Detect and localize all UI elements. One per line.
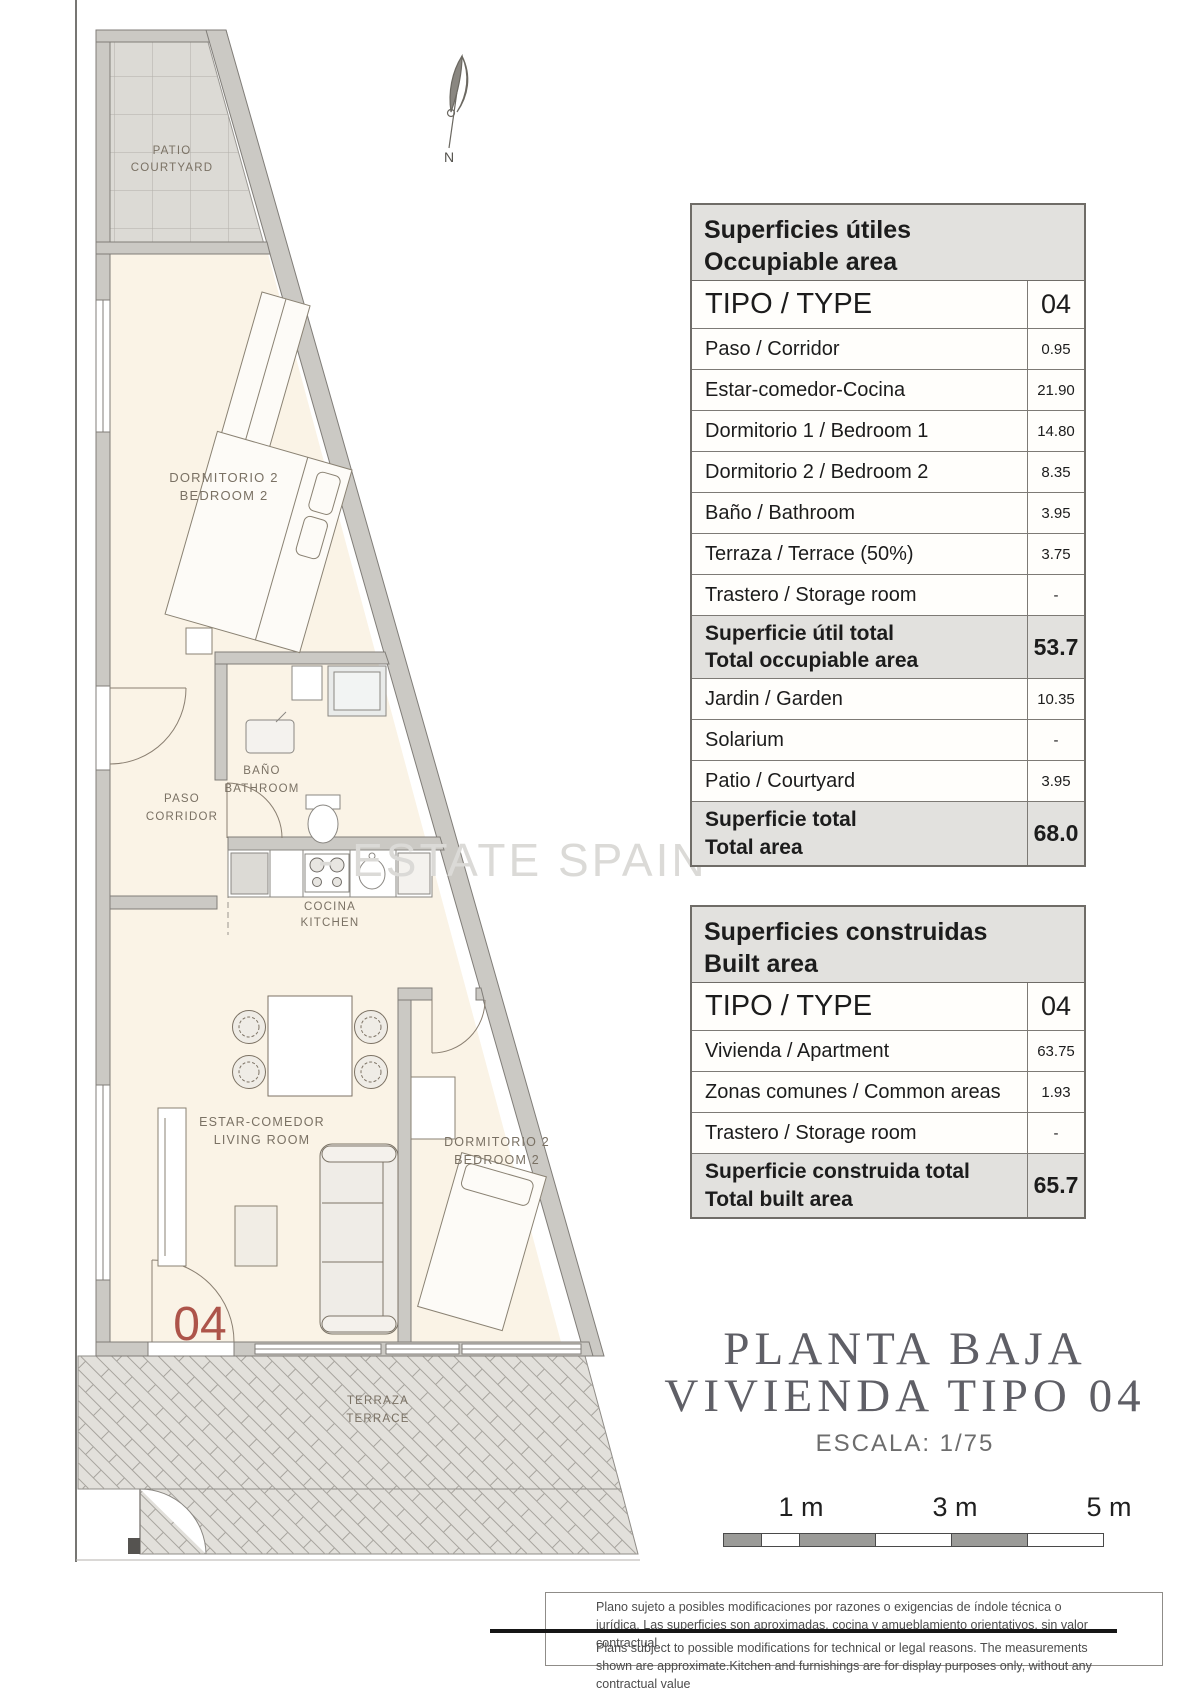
- table-row: Jardin / Garden 10.35: [692, 679, 1084, 720]
- built-table-header: Superficies construidas Built area: [692, 907, 1084, 983]
- table-row: Paso / Corridor 0.95: [692, 329, 1084, 370]
- scale-segment: [875, 1533, 952, 1547]
- total-row: Superficie construida total Total built …: [692, 1154, 1084, 1217]
- room-label-living: ESTAR-COMEDOR: [199, 1115, 325, 1129]
- compass-icon: [448, 56, 468, 148]
- scale-segment: [799, 1533, 876, 1547]
- table-row: Baño / Bathroom 3.95: [692, 493, 1084, 534]
- tv-unit: [158, 1108, 186, 1266]
- table-row: Trastero / Storage room -: [692, 1113, 1084, 1154]
- room-label-kitchen: COCINA: [304, 901, 356, 913]
- room-label-corridor: PASO: [164, 793, 200, 805]
- terrace-area: [78, 1356, 638, 1554]
- table-row: Dormitorio 1 / Bedroom 1 14.80: [692, 411, 1084, 452]
- room-label-bedroom-lower: DORMITORIO 2: [444, 1135, 550, 1149]
- room-label-patio: PATIO: [153, 145, 192, 157]
- table-row: Terraza / Terrace (50%) 3.75: [692, 534, 1084, 575]
- scale-text: ESCALA: 1/75: [650, 1430, 1160, 1458]
- closet: [411, 1077, 455, 1139]
- table-row: Vivienda / Apartment 63.75: [692, 1031, 1084, 1072]
- table-row: Zonas comunes / Common areas 1.93: [692, 1072, 1084, 1113]
- room-label-living2: LIVING ROOM: [214, 1133, 311, 1147]
- occupiable-table-header: Superficies útiles Occupiable area: [692, 205, 1084, 281]
- room-label-bath: BAÑO: [243, 764, 280, 777]
- room-label-terrace2: TERRACE: [346, 1413, 409, 1425]
- title-line-2: VIVIENDA TIPO 04: [650, 1373, 1160, 1420]
- disclaimer-divider-line: [490, 1629, 1117, 1633]
- total-row: Superficie total Total area 68.0: [692, 802, 1084, 865]
- scalebar-label-1m: 1 m: [761, 1492, 841, 1523]
- room-label-bath2: BATHROOM: [224, 783, 299, 795]
- title-line-1: PLANTA BAJA: [650, 1326, 1160, 1373]
- nightstand: [186, 628, 212, 654]
- room-label-corridor2: CORRIDOR: [146, 811, 218, 823]
- north-label: N: [444, 149, 454, 165]
- scale-segment: [1027, 1533, 1104, 1547]
- room-label-terrace: TERRAZA: [347, 1395, 409, 1407]
- tipo-row: TIPO / TYPE 04: [692, 281, 1084, 329]
- built-area-table: Superficies construidas Built area TIPO …: [690, 905, 1086, 1219]
- table-row: Solarium -: [692, 720, 1084, 761]
- subtotal-row: Superficie útil total Total occupiable a…: [692, 616, 1084, 679]
- room-label-patio2: COURTYARD: [131, 162, 214, 174]
- room-label-kitchen2: KITCHEN: [301, 917, 360, 929]
- scale-segment: [951, 1533, 1028, 1547]
- page: N PATIO COURTYARD DORMITORIO 2 BEDROOM 2…: [0, 0, 1204, 1704]
- scale-bar: [723, 1533, 1104, 1547]
- scalebar-label-3m: 3 m: [915, 1492, 995, 1523]
- room-label-bedroom-lower2: BEDROOM 2: [454, 1153, 540, 1167]
- room-label-bedroom-upper: DORMITORIO 2: [169, 470, 279, 485]
- watermark: - ESTATE SPAIN -: [318, 833, 742, 887]
- table-row: Dormitorio 2 / Bedroom 2 8.35: [692, 452, 1084, 493]
- coffee-table: [235, 1206, 277, 1266]
- scale-segment: [761, 1533, 800, 1547]
- unit-number-label: 04: [173, 1298, 226, 1351]
- tipo-row: TIPO / TYPE 04: [692, 983, 1084, 1031]
- scale-segment: [723, 1533, 762, 1547]
- table-row: Estar-comedor-Cocina 21.90: [692, 370, 1084, 411]
- sofa: [320, 1144, 398, 1334]
- disclaimer-en: Plans subject to possible modifications …: [596, 1639, 1098, 1693]
- gate-mark: [128, 1538, 140, 1554]
- occupiable-area-table: Superficies útiles Occupiable area TIPO …: [690, 203, 1086, 867]
- scalebar-label-5m: 5 m: [1069, 1492, 1149, 1523]
- table-row: Trastero / Storage room -: [692, 575, 1084, 616]
- table-row: Patio / Courtyard 3.95: [692, 761, 1084, 802]
- room-label-bedroom-upper2: BEDROOM 2: [180, 488, 269, 503]
- plan-title: PLANTA BAJA VIVIENDA TIPO 04 ESCALA: 1/7…: [650, 1326, 1160, 1458]
